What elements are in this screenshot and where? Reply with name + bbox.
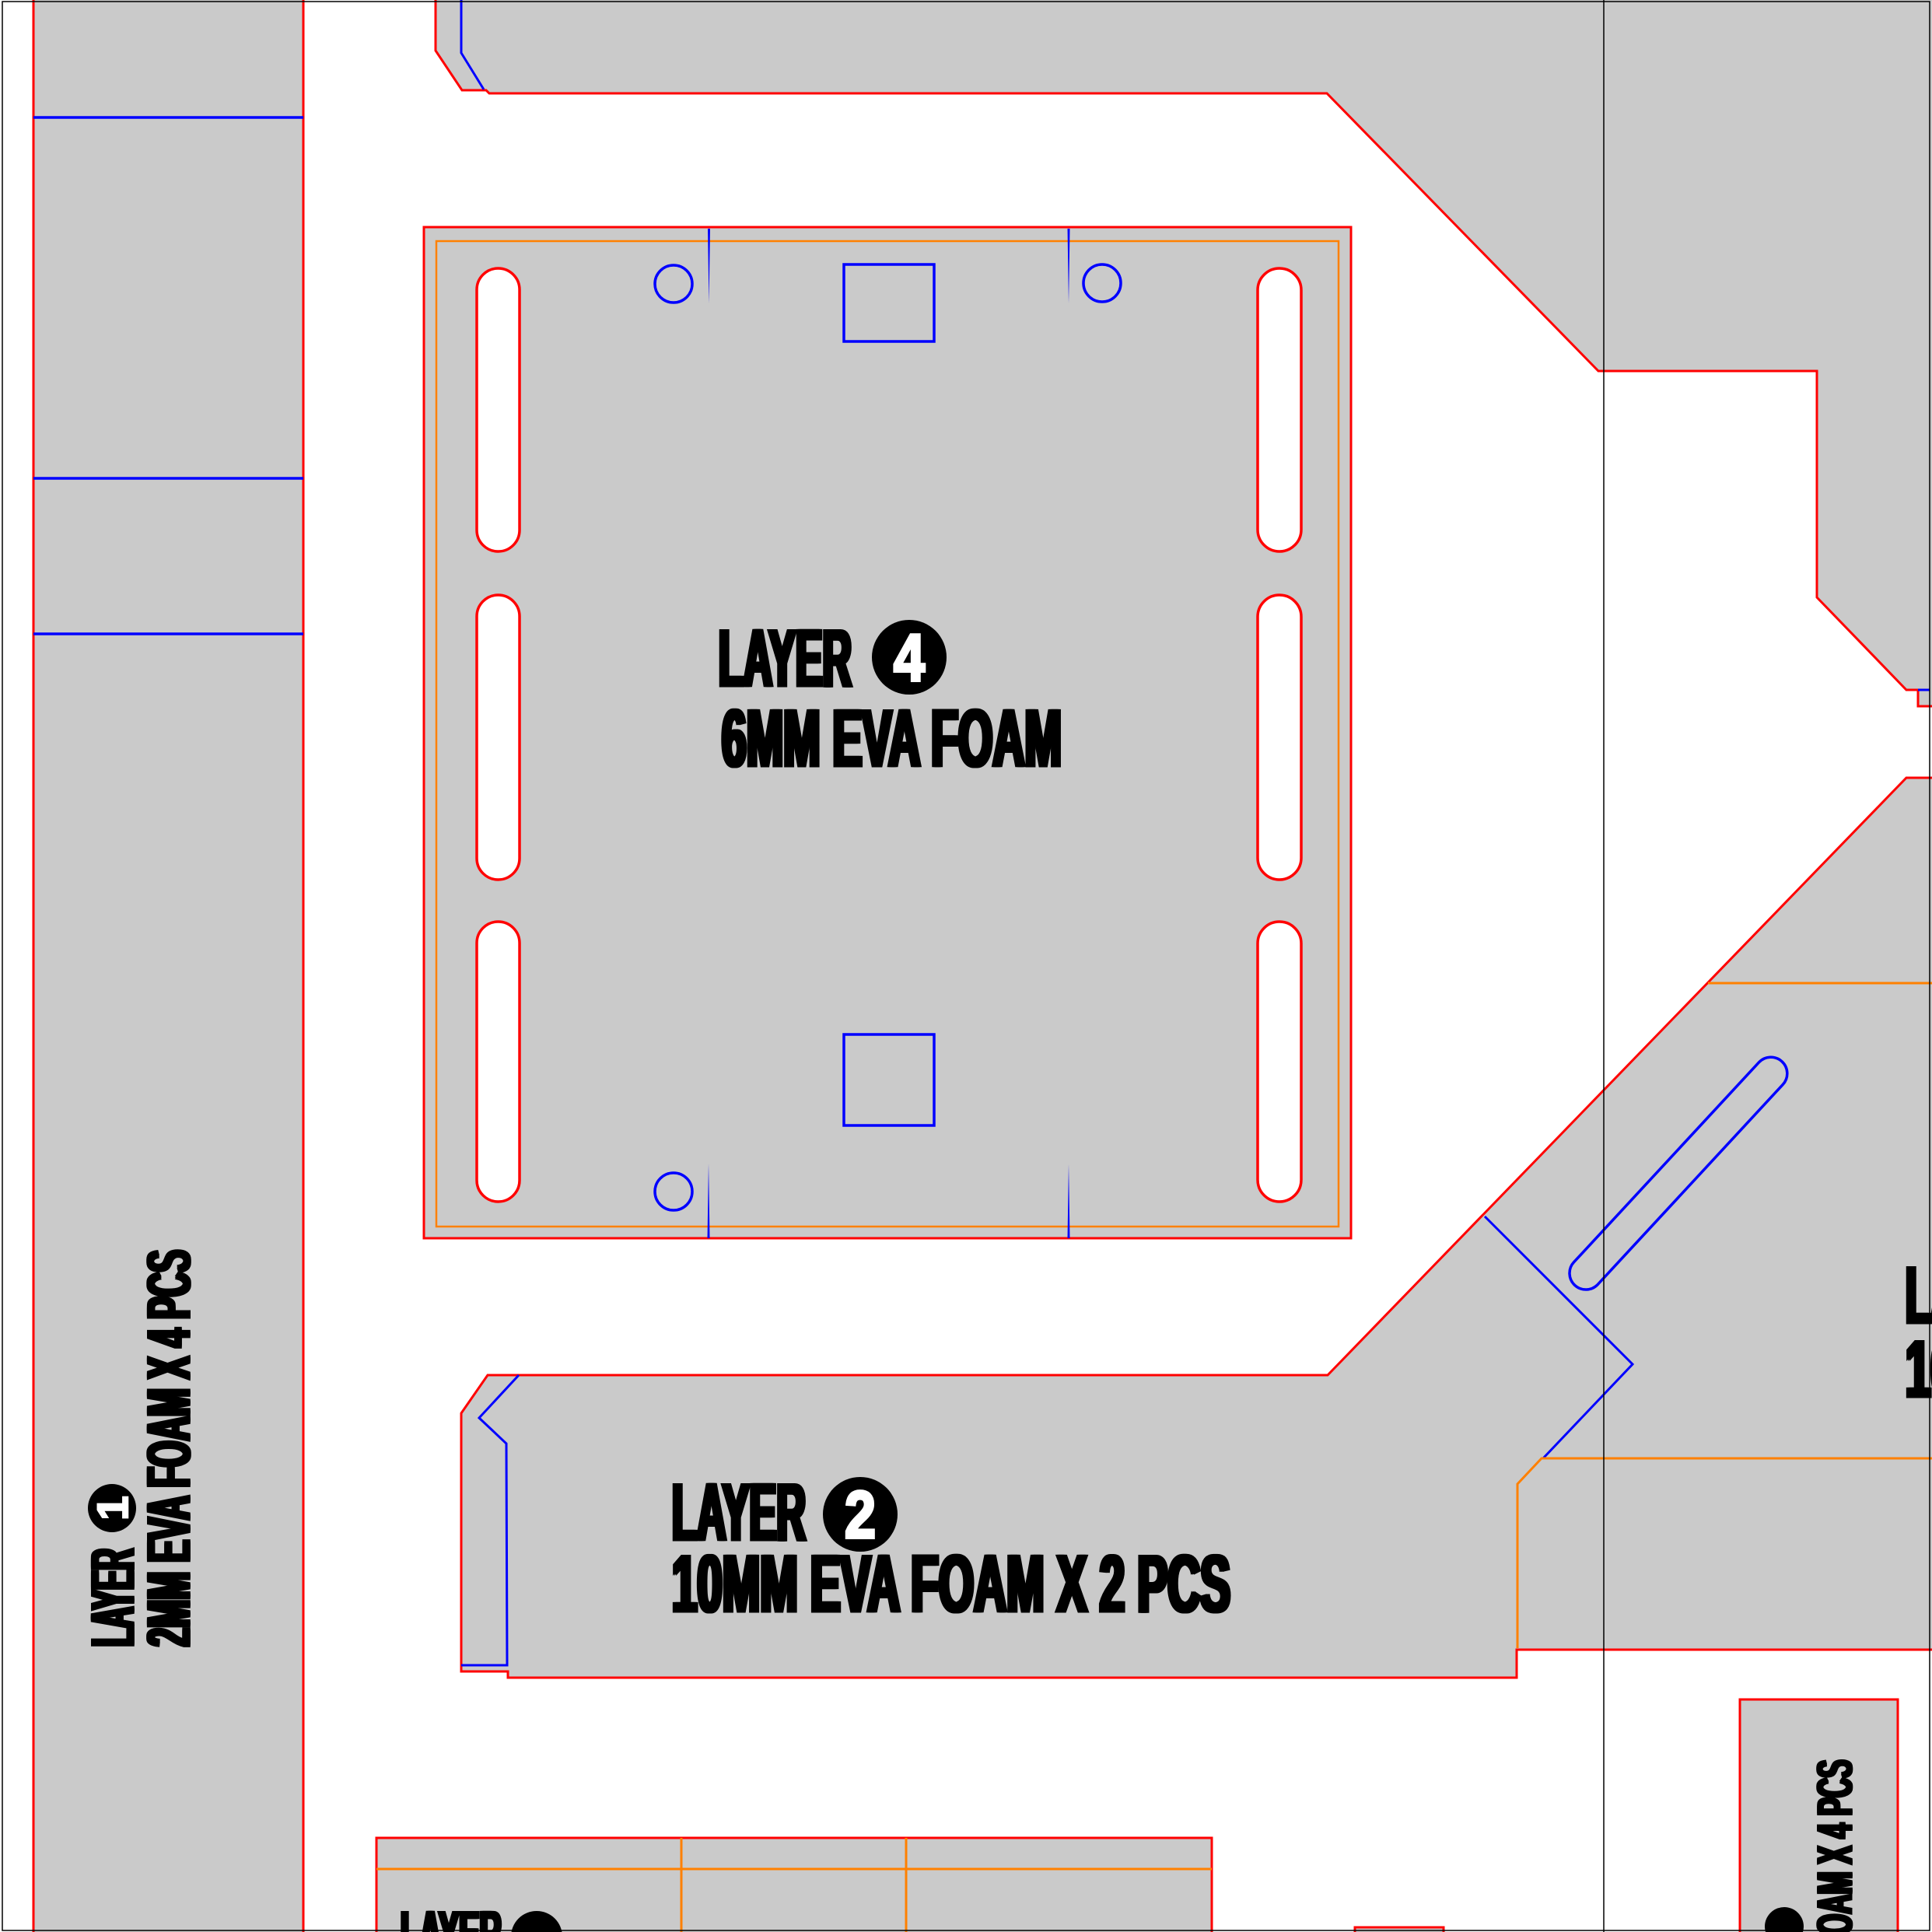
svg-text:4: 4 [894,621,925,695]
svg-text:6MM EVA FOAM: 6MM EVA FOAM [723,694,1063,784]
svg-text:1: 1 [88,1496,137,1520]
svg-text:LAYER: LAYER [720,614,853,704]
svg-text:10MM EVA FOAM X 2 PCS: 10MM EVA FOAM X 2 PCS [674,1539,1232,1629]
svg-text:2MM EVA FOAM X 4 PCS: 2MM EVA FOAM X 4 PCS [134,1248,203,1645]
svg-text:10MM EVA FOAM X 2 PCS: 10MM EVA FOAM X 2 PCS [1907,1325,1932,1415]
svg-text:LAYER: LAYER [402,1898,503,1932]
svg-text:2MM EVA FOAM X 4 PCS: 2MM EVA FOAM X 4 PCS [1807,1759,1863,1932]
